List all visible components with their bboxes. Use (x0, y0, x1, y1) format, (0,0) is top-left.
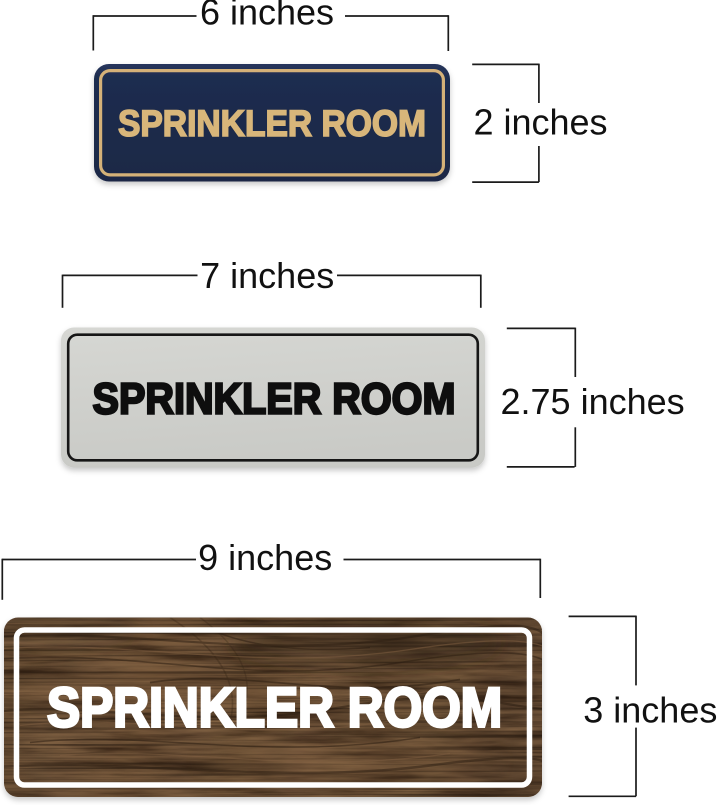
svg-text:3 inches: 3 inches (583, 689, 717, 730)
svg-text:2.75 inches: 2.75 inches (501, 381, 685, 422)
svg-text:7 inches: 7 inches (200, 255, 334, 296)
svg-text:SPRINKLER ROOM: SPRINKLER ROOM (93, 374, 456, 423)
svg-text:9 inches: 9 inches (198, 537, 332, 578)
svg-text:6 inches: 6 inches (200, 0, 334, 33)
svg-text:SPRINKLER ROOM: SPRINKLER ROOM (47, 677, 502, 739)
svg-text:SPRINKLER ROOM: SPRINKLER ROOM (118, 104, 426, 145)
svg-text:2 inches: 2 inches (473, 102, 607, 143)
